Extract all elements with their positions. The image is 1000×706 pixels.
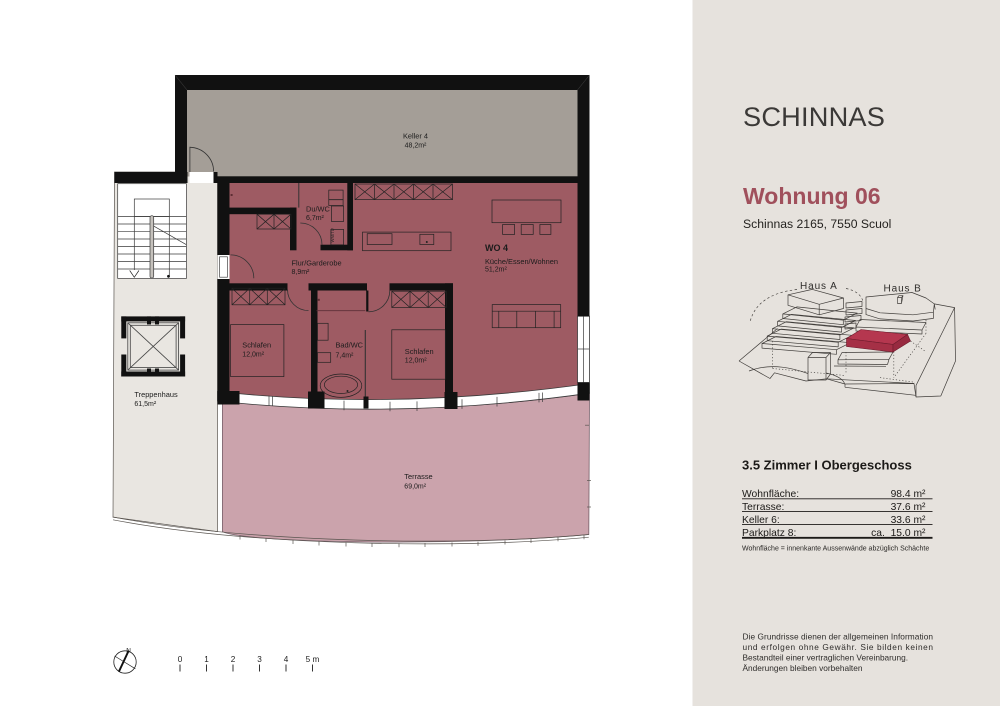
svg-text:1: 1 bbox=[204, 655, 209, 664]
svg-text:Flur/Garderobe: Flur/Garderobe bbox=[292, 259, 342, 268]
svg-text:48,2m²: 48,2m² bbox=[405, 143, 427, 150]
svg-text:4: 4 bbox=[284, 655, 289, 664]
svg-text:6,7m²: 6,7m² bbox=[306, 215, 325, 222]
svg-text:Änderungen bleiben vorbehalten: Änderungen bleiben vorbehalten bbox=[743, 663, 863, 673]
svg-text:7,4m²: 7,4m² bbox=[336, 353, 355, 360]
svg-text:Treppenhaus: Treppenhaus bbox=[134, 390, 178, 399]
svg-text:61,5m²: 61,5m² bbox=[134, 401, 156, 408]
svg-text:Bad/WC: Bad/WC bbox=[336, 341, 364, 350]
svg-text:51,2m²: 51,2m² bbox=[485, 267, 507, 274]
svg-text:0: 0 bbox=[178, 655, 183, 664]
svg-text:Haus B: Haus B bbox=[884, 284, 922, 295]
svg-text:Wohnfläche = innenkante Aussen: Wohnfläche = innenkante Aussenwände abzü… bbox=[742, 546, 929, 553]
svg-text:WM/TU: WM/TU bbox=[330, 228, 335, 242]
svg-text:5 m: 5 m bbox=[306, 655, 320, 664]
svg-text:Terrasse: Terrasse bbox=[404, 472, 432, 481]
svg-text:Haus A: Haus A bbox=[800, 281, 838, 292]
svg-text:N: N bbox=[126, 647, 131, 654]
svg-text:12,0m²: 12,0m² bbox=[242, 352, 264, 359]
svg-text:3: 3 bbox=[257, 655, 262, 664]
svg-text:WO 4: WO 4 bbox=[485, 243, 508, 253]
svg-text:Die Grundrisse dienen der allg: Die Grundrisse dienen der allgemeinen In… bbox=[743, 632, 934, 642]
svg-text:Du/WC: Du/WC bbox=[306, 204, 330, 213]
svg-text:und erfolgen ohne Gewähr. Sie: und erfolgen ohne Gewähr. Sie bilden kei… bbox=[743, 642, 934, 652]
svg-text:Keller 4: Keller 4 bbox=[403, 132, 428, 141]
svg-text:2: 2 bbox=[231, 655, 236, 664]
svg-text:SCHINNAS: SCHINNAS bbox=[743, 101, 885, 132]
svg-text:8,9m²: 8,9m² bbox=[292, 269, 311, 276]
svg-text:Schinnas 2165, 7550 Scuol: Schinnas 2165, 7550 Scuol bbox=[743, 217, 891, 231]
svg-text:Schlafen: Schlafen bbox=[405, 347, 434, 356]
svg-text:Küche/Essen/Wohnen: Küche/Essen/Wohnen bbox=[485, 257, 558, 266]
svg-text:12,0m²: 12,0m² bbox=[405, 358, 427, 365]
svg-text:Schlafen: Schlafen bbox=[242, 341, 271, 350]
svg-text:69,0m²: 69,0m² bbox=[404, 484, 426, 491]
svg-text:Bestandteil einer vertragliche: Bestandteil einer vertraglichen Vereinba… bbox=[743, 653, 909, 663]
svg-text:3.5 Zimmer I Obergeschoss: 3.5 Zimmer I Obergeschoss bbox=[742, 457, 912, 472]
svg-text:Wohnung 06: Wohnung 06 bbox=[743, 183, 881, 209]
